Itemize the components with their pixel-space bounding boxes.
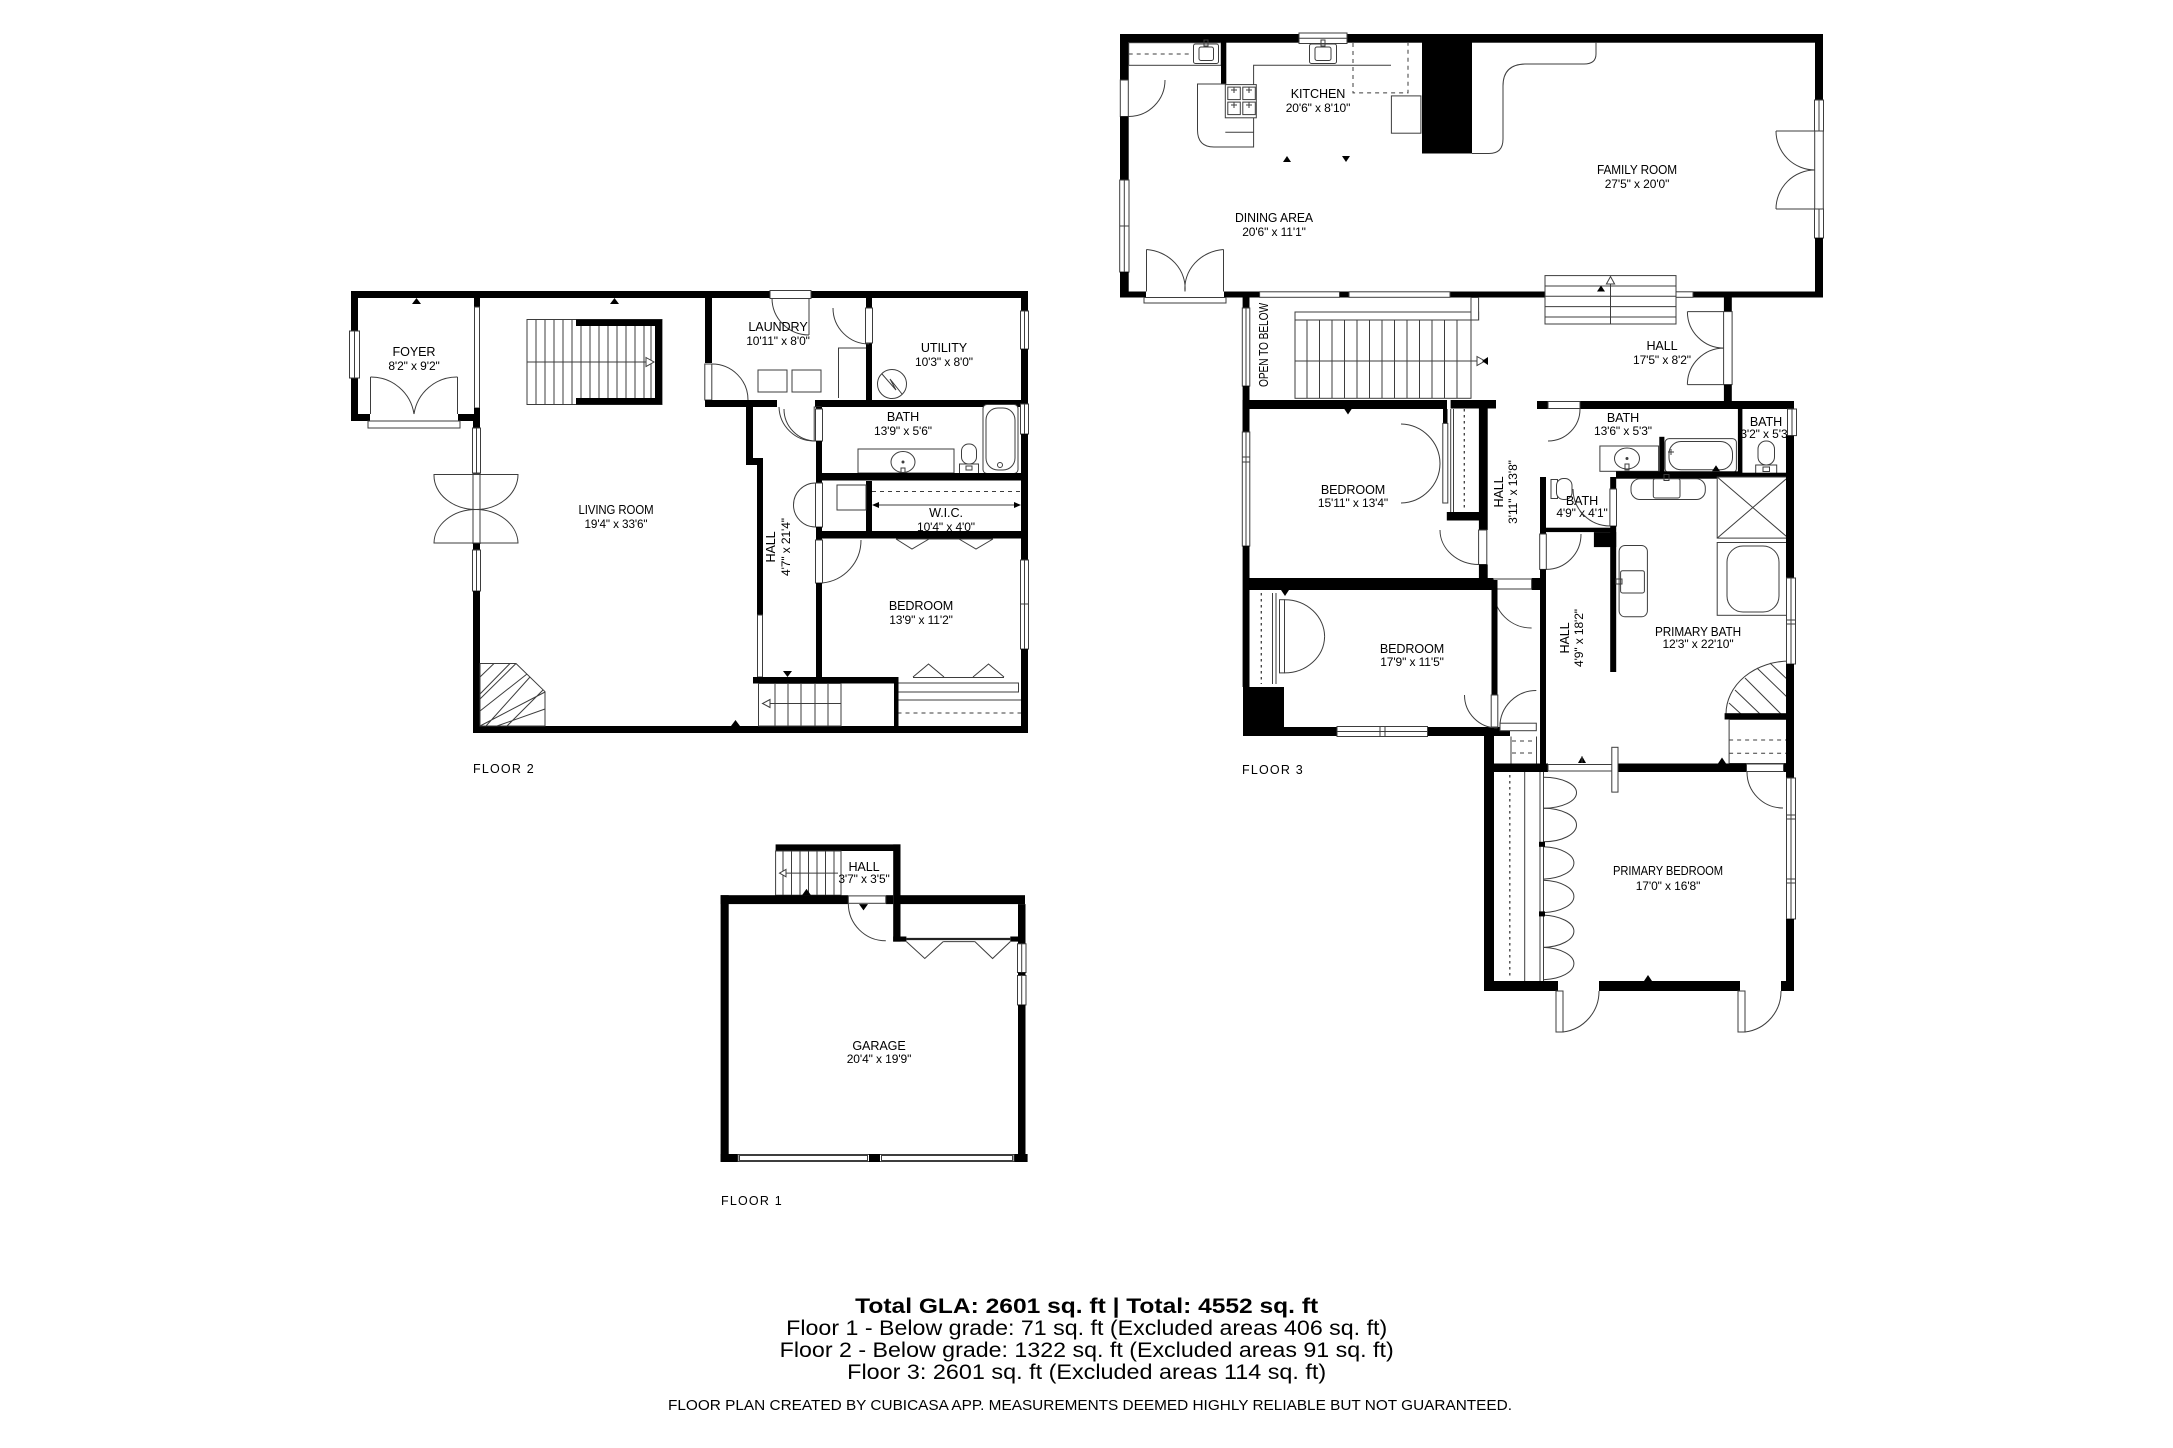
svg-text:LAUNDRY: LAUNDRY [748,320,808,334]
svg-text:4'9" x 18'2": 4'9" x 18'2" [1572,609,1586,667]
svg-text:HALL: HALL [764,531,778,562]
svg-text:13'6" x 5'3": 13'6" x 5'3" [1594,424,1652,438]
svg-text:Floor 1 - Below grade: 71 sq.: Floor 1 - Below grade: 71 sq. ft (Exclud… [786,1316,1387,1340]
svg-text:Floor 2 - Below grade: 1322 sq: Floor 2 - Below grade: 1322 sq. ft (Excl… [780,1338,1394,1362]
svg-text:BATH: BATH [887,410,919,424]
svg-text:12'3" x 22'10": 12'3" x 22'10" [1662,637,1733,651]
svg-text:20'6" x 8'10": 20'6" x 8'10" [1286,101,1351,115]
svg-text:BEDROOM: BEDROOM [1321,483,1385,497]
svg-text:20'4" x 19'9": 20'4" x 19'9" [847,1052,912,1066]
svg-text:13'9" x 11'2": 13'9" x 11'2" [889,613,953,627]
svg-text:FLOOR PLAN CREATED BY CUBICASA: FLOOR PLAN CREATED BY CUBICASA APP. MEAS… [668,1397,1512,1414]
svg-text:PRIMARY BEDROOM: PRIMARY BEDROOM [1613,864,1723,878]
svg-text:3'2" x 5'3": 3'2" x 5'3" [1740,427,1791,441]
svg-text:FLOOR 2: FLOOR 2 [473,762,535,776]
svg-text:FLOOR 1: FLOOR 1 [721,1194,783,1208]
svg-text:FAMILY ROOM: FAMILY ROOM [1597,163,1677,177]
svg-text:W.I.C.: W.I.C. [929,506,963,520]
svg-text:BATH: BATH [1607,411,1639,425]
svg-text:15'11" x 13'4": 15'11" x 13'4" [1318,496,1388,510]
svg-text:BEDROOM: BEDROOM [889,599,953,613]
svg-text:UTILITY: UTILITY [921,341,968,355]
svg-text:OPEN TO BELOW: OPEN TO BELOW [1257,303,1271,387]
svg-text:3'7" x 3'5": 3'7" x 3'5" [838,872,889,886]
svg-text:Total GLA: 2601 sq. ft | Total: Total GLA: 2601 sq. ft | Total: 4552 sq.… [855,1294,1318,1318]
svg-text:17'9" x 11'5": 17'9" x 11'5" [1380,655,1444,669]
svg-text:DINING AREA: DINING AREA [1235,211,1314,225]
svg-text:FOYER: FOYER [393,345,436,359]
svg-text:BEDROOM: BEDROOM [1380,642,1444,656]
svg-text:Floor 3: 2601 sq. ft (Excluded: Floor 3: 2601 sq. ft (Excluded areas 114… [847,1360,1326,1384]
svg-text:FLOOR 3: FLOOR 3 [1242,763,1304,777]
svg-text:13'9" x 5'6": 13'9" x 5'6" [874,424,932,438]
svg-text:8'2" x 9'2": 8'2" x 9'2" [388,359,439,373]
svg-text:17'0" x 16'8": 17'0" x 16'8" [1636,879,1701,893]
svg-text:LIVING ROOM: LIVING ROOM [579,503,654,517]
svg-text:17'5" x 8'2": 17'5" x 8'2" [1633,353,1691,367]
svg-text:20'6" x 11'1": 20'6" x 11'1" [1242,225,1306,239]
svg-text:HALL: HALL [1646,339,1677,353]
svg-text:10'3" x 8'0": 10'3" x 8'0" [915,355,973,369]
svg-text:19'4" x 33'6": 19'4" x 33'6" [585,517,648,531]
svg-text:KITCHEN: KITCHEN [1291,87,1346,101]
svg-text:4'7" x 21'4": 4'7" x 21'4" [779,518,793,576]
svg-text:GARAGE: GARAGE [852,1039,905,1053]
svg-text:HALL: HALL [1558,622,1572,653]
svg-text:27'5" x 20'0": 27'5" x 20'0" [1605,177,1670,191]
svg-text:HALL: HALL [1492,476,1506,507]
svg-text:3'11" x 13'8": 3'11" x 13'8" [1506,460,1520,524]
svg-text:10'11" x 8'0": 10'11" x 8'0" [746,334,810,348]
